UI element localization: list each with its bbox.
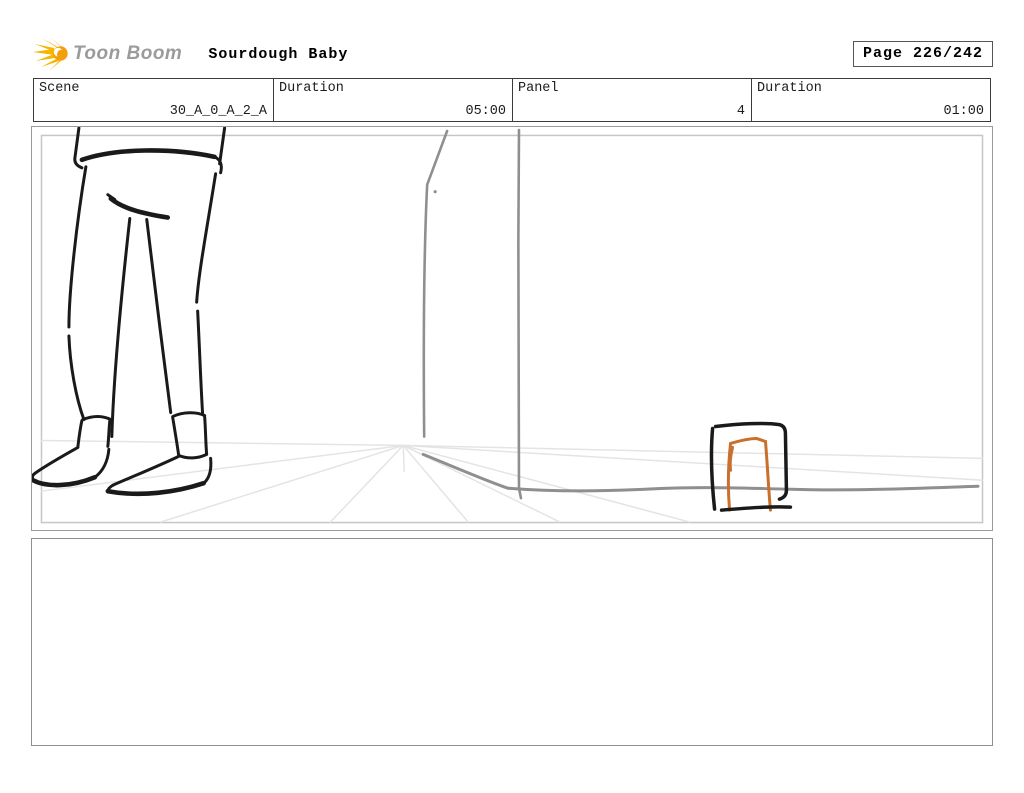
scene-duration-cell: Duration 05:00: [273, 79, 512, 121]
panel-duration-label: Duration: [757, 81, 822, 96]
perspective-guides: [41, 440, 983, 522]
logo-wordmark: Toon Boom: [73, 43, 182, 65]
panel-number-cell: Panel 4: [512, 79, 751, 121]
scene-duration-label: Duration: [279, 81, 344, 96]
panel-number-value: 4: [737, 104, 745, 119]
panel-duration-cell: Duration 01:00: [751, 79, 990, 121]
character-legs-sketch: [32, 128, 224, 494]
panel-duration-value: 01:00: [943, 104, 984, 119]
page-header: Toon Boom Sourdough Baby Page 226/242: [33, 36, 993, 72]
toon-boom-logo-icon: [33, 36, 69, 72]
scene-value: 30_A_0_A_2_A: [170, 104, 267, 119]
storyboard-page: Toon Boom Sourdough Baby Page 226/242 Sc…: [0, 0, 1024, 793]
stray-dot: [434, 190, 437, 193]
page-number-badge: Page 226/242: [853, 41, 993, 67]
panel-info-table: Scene 30_A_0_A_2_A Duration 05:00 Panel …: [33, 78, 991, 122]
inner-frame: [41, 135, 982, 522]
panel-number-label: Panel: [518, 81, 559, 96]
scene-cell: Scene 30_A_0_A_2_A: [34, 79, 273, 121]
storyboard-frame: [31, 126, 993, 531]
caption-panel: [31, 538, 993, 746]
storyboard-drawing: [32, 127, 992, 530]
scene-label: Scene: [39, 81, 80, 96]
scene-duration-value: 05:00: [465, 104, 506, 119]
project-title: Sourdough Baby: [208, 46, 348, 63]
doorway-lines: [424, 130, 521, 498]
